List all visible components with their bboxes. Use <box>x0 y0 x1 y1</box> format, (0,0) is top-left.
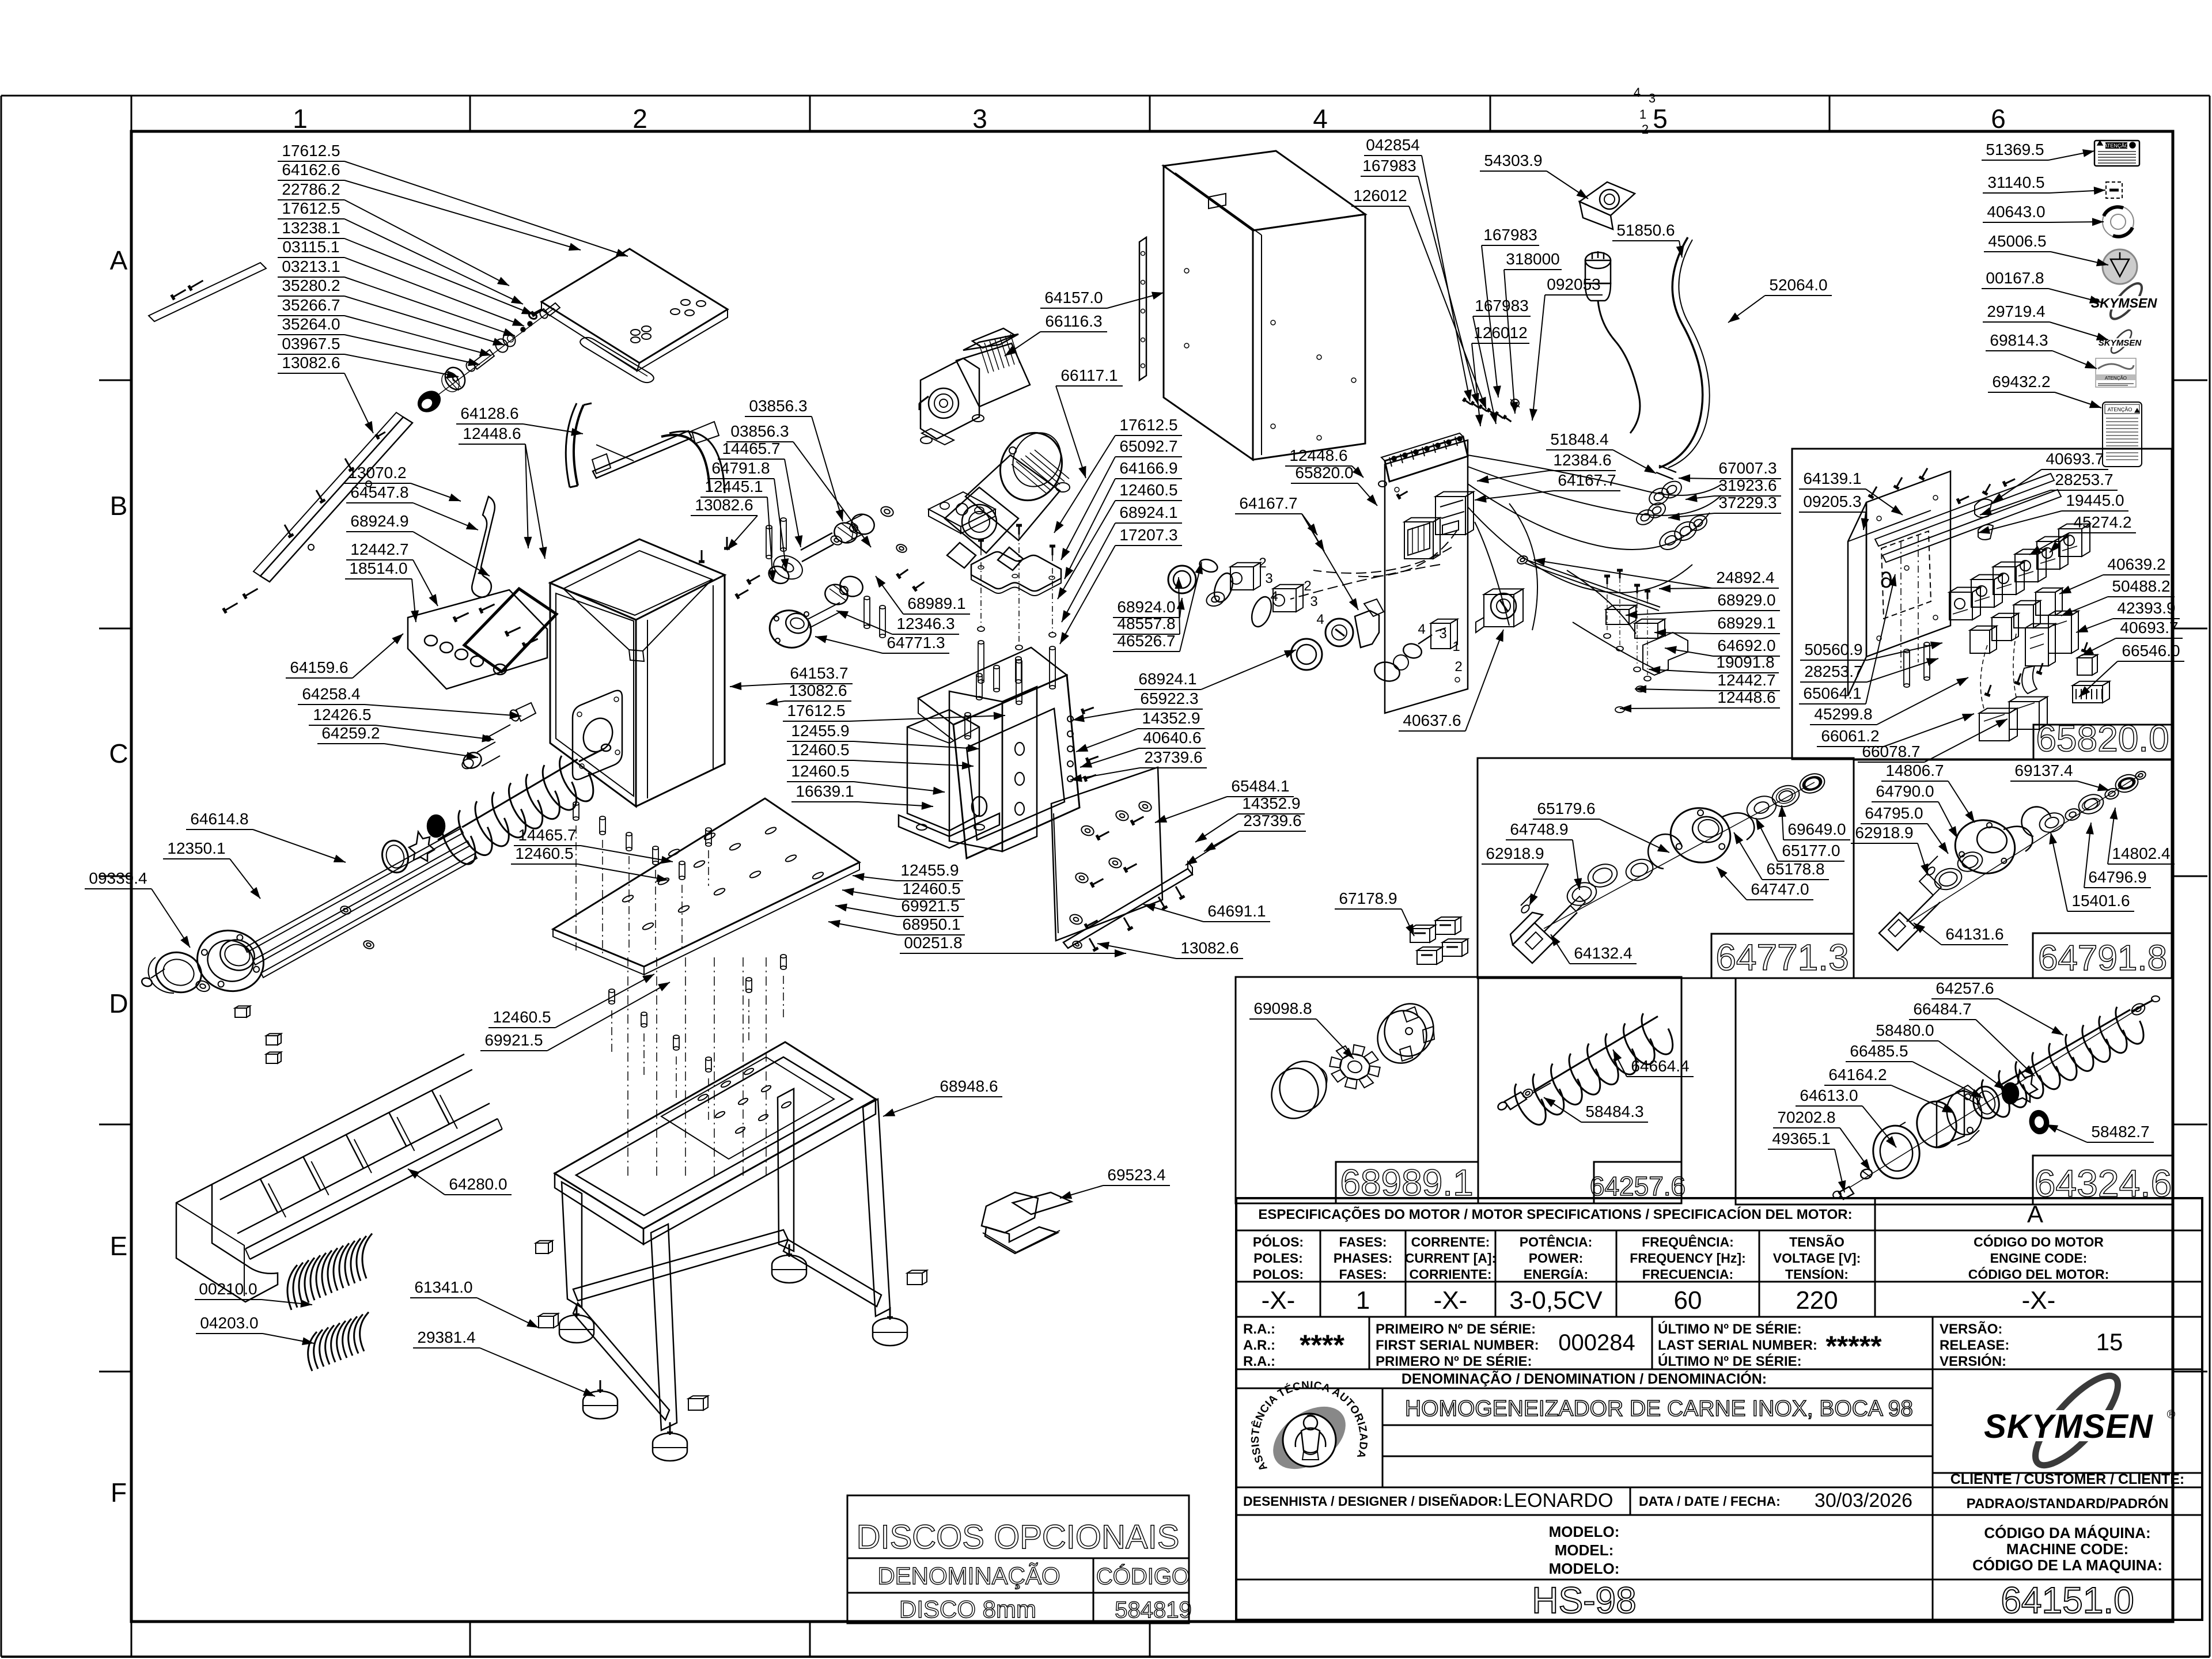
svg-text:167983: 167983 <box>1475 297 1528 315</box>
svg-text:1: 1 <box>1639 107 1646 122</box>
svg-text:17612.5: 17612.5 <box>282 199 340 217</box>
svg-text:65064.1: 65064.1 <box>1803 684 1861 702</box>
svg-text:60: 60 <box>1674 1286 1702 1315</box>
svg-text:40643.0: 40643.0 <box>1987 203 2045 221</box>
svg-text:12442.7: 12442.7 <box>1717 671 1775 689</box>
svg-text:4: 4 <box>1418 622 1425 637</box>
svg-text:03856.3: 03856.3 <box>749 397 807 415</box>
svg-text:092053: 092053 <box>1547 275 1600 293</box>
svg-text:FREQUÊNCIA:: FREQUÊNCIA: <box>1642 1234 1734 1249</box>
svg-text:67007.3: 67007.3 <box>1718 459 1777 477</box>
svg-text:12448.6: 12448.6 <box>1289 446 1347 464</box>
svg-text:69432.2: 69432.2 <box>1992 373 2050 391</box>
svg-text:64547.8: 64547.8 <box>350 483 408 501</box>
svg-text:14352.9: 14352.9 <box>1242 794 1300 812</box>
svg-text:69523.4: 69523.4 <box>1107 1166 1165 1184</box>
svg-text:CÓDIGO DO MOTOR: CÓDIGO DO MOTOR <box>1974 1234 2104 1249</box>
svg-text:CORRIENTE:: CORRIENTE: <box>1409 1267 1491 1282</box>
svg-text:58484.3: 58484.3 <box>1585 1103 1643 1120</box>
svg-text:64258.4: 64258.4 <box>302 685 360 703</box>
svg-text:65177.0: 65177.0 <box>1782 842 1840 859</box>
svg-text:66117.1: 66117.1 <box>1060 366 1118 384</box>
svg-text:FRECUENCIA:: FRECUENCIA: <box>1642 1267 1733 1282</box>
svg-text:PRIMERO Nº DE SÉRIE:: PRIMERO Nº DE SÉRIE: <box>1376 1353 1532 1369</box>
svg-text:49365.1: 49365.1 <box>1772 1130 1830 1147</box>
svg-text:70202.8: 70202.8 <box>1777 1108 1835 1126</box>
svg-text:LAST SERIAL NUMBER:: LAST SERIAL NUMBER: <box>1658 1338 1817 1353</box>
svg-text:POLES:: POLES: <box>1253 1251 1303 1266</box>
svg-text:VERSÃO:: VERSÃO: <box>1940 1321 2002 1337</box>
svg-text:64280.0: 64280.0 <box>449 1175 507 1193</box>
svg-text:126012: 126012 <box>1474 324 1527 342</box>
svg-text:28253.7: 28253.7 <box>2055 471 2113 488</box>
svg-text:69814.3: 69814.3 <box>1990 331 2048 349</box>
svg-text:167983: 167983 <box>1483 226 1537 244</box>
svg-text:ÚLTIMO Nº DE SÉRIE:: ÚLTIMO Nº DE SÉRIE: <box>1658 1353 1802 1369</box>
svg-text:POLOS:: POLOS: <box>1253 1267 1304 1282</box>
svg-text:LEONARDO: LEONARDO <box>1503 1490 1613 1512</box>
svg-text:64791.8: 64791.8 <box>2038 938 2167 978</box>
svg-text:64167.7: 64167.7 <box>1558 471 1616 489</box>
svg-text:31923.6: 31923.6 <box>1718 476 1777 494</box>
svg-text:17612.5: 17612.5 <box>787 702 845 719</box>
svg-text:®: ® <box>2167 1408 2176 1421</box>
svg-text:HOMOGENEIZADOR DE CARNE INOX,: HOMOGENEIZADOR DE CARNE INOX, BOCA 98 <box>1405 1396 1913 1421</box>
svg-text:17612.5: 17612.5 <box>1119 416 1177 434</box>
svg-text:12460.5: 12460.5 <box>515 844 573 862</box>
svg-text:03967.5: 03967.5 <box>282 335 340 353</box>
svg-text:12460.5: 12460.5 <box>902 880 960 897</box>
svg-text:14802.4: 14802.4 <box>2112 844 2170 862</box>
svg-text:68929.1: 68929.1 <box>1717 614 1775 632</box>
svg-text:69098.8: 69098.8 <box>1253 999 1312 1017</box>
svg-text:FIRST SERIAL NUMBER:: FIRST SERIAL NUMBER: <box>1376 1338 1539 1353</box>
svg-text:ÚLTIMO Nº DE SÉRIE:: ÚLTIMO Nº DE SÉRIE: <box>1658 1321 1802 1337</box>
svg-text:DISCOS OPCIONAIS: DISCOS OPCIONAIS <box>857 1518 1180 1556</box>
svg-text:F: F <box>111 1478 127 1508</box>
svg-text:CÓDIGO: CÓDIGO <box>1096 1563 1190 1589</box>
svg-text:ENERGÍA:: ENERGÍA: <box>1524 1266 1588 1282</box>
svg-text:58480.0: 58480.0 <box>1876 1021 1934 1039</box>
svg-text:68950.1: 68950.1 <box>902 915 960 933</box>
svg-text:4: 4 <box>1313 104 1328 134</box>
svg-text:C: C <box>109 738 128 768</box>
svg-text:15: 15 <box>2096 1328 2123 1355</box>
svg-text:12384.6: 12384.6 <box>1553 451 1611 469</box>
svg-text:31140.5: 31140.5 <box>1987 173 2044 191</box>
svg-text:12455.9: 12455.9 <box>900 861 959 879</box>
svg-text:64259.2: 64259.2 <box>321 724 380 742</box>
svg-text:64139.1: 64139.1 <box>1803 469 1861 487</box>
svg-text:00251.8: 00251.8 <box>904 934 962 952</box>
svg-text:-X-: -X- <box>2022 1286 2056 1315</box>
svg-text:12426.5: 12426.5 <box>313 706 371 724</box>
svg-text:64771.3: 64771.3 <box>1715 937 1849 978</box>
svg-text:69921.5: 69921.5 <box>901 897 959 915</box>
svg-text:64166.9: 64166.9 <box>1119 459 1177 477</box>
svg-text:22786.2: 22786.2 <box>282 180 340 198</box>
svg-text:64159.6: 64159.6 <box>290 658 348 676</box>
svg-text:50560.9: 50560.9 <box>1804 641 1862 658</box>
svg-text:51848.4: 51848.4 <box>1550 430 1608 448</box>
svg-text:17612.5: 17612.5 <box>282 142 340 160</box>
svg-text:35280.2: 35280.2 <box>282 276 340 294</box>
svg-text:23739.6: 23739.6 <box>1144 748 1202 766</box>
svg-text:35266.7: 35266.7 <box>282 296 340 314</box>
svg-text:12460.5: 12460.5 <box>1119 481 1177 499</box>
svg-text:ESPECIFICAÇÕES DO MOTOR / MOTO: ESPECIFICAÇÕES DO MOTOR / MOTOR SPECIFIC… <box>1258 1206 1852 1222</box>
svg-text:64162.6: 64162.6 <box>282 161 340 179</box>
svg-text:12455.9: 12455.9 <box>791 722 849 740</box>
svg-text:12460.5: 12460.5 <box>493 1008 551 1026</box>
svg-text:13082.6: 13082.6 <box>282 354 340 372</box>
svg-text:1: 1 <box>1356 1286 1370 1315</box>
svg-text:-X-: -X- <box>1434 1286 1468 1315</box>
svg-text:CLIENTE / CUSTOMER / CLIENTE:: CLIENTE / CUSTOMER / CLIENTE: <box>1950 1471 2185 1487</box>
svg-text:1: 1 <box>1452 639 1460 654</box>
svg-text:CÓDIGO DE LA MAQUINA:: CÓDIGO DE LA MAQUINA: <box>1972 1556 2162 1574</box>
svg-text:DENOMINAÇÃO / DENOMINATION / D: DENOMINAÇÃO / DENOMINATION / DENOMINACIÓ… <box>1402 1370 1767 1387</box>
svg-text:54303.9: 54303.9 <box>1484 151 1542 169</box>
svg-text:40639.2: 40639.2 <box>2107 555 2165 573</box>
svg-text:64614.8: 64614.8 <box>190 810 248 828</box>
svg-text:30/03/2026: 30/03/2026 <box>1815 1490 1912 1512</box>
svg-text:POTÊNCIA:: POTÊNCIA: <box>1520 1234 1593 1249</box>
svg-text:64790.0: 64790.0 <box>1876 782 1934 800</box>
svg-text:16639.1: 16639.1 <box>796 782 854 800</box>
svg-text:64747.0: 64747.0 <box>1751 880 1809 898</box>
svg-text:64157.0: 64157.0 <box>1044 289 1103 306</box>
svg-text:MODELO:: MODELO: <box>1549 1560 1620 1577</box>
svg-text:64795.0: 64795.0 <box>1865 804 1923 822</box>
svg-text:64691.1: 64691.1 <box>1207 902 1266 920</box>
svg-text:CURRENT [A]:: CURRENT [A]: <box>1405 1251 1496 1266</box>
svg-text:64128.6: 64128.6 <box>460 404 518 422</box>
svg-text:MODELO:: MODELO: <box>1549 1523 1620 1540</box>
svg-text:A.R.:: A.R.: <box>1243 1338 1275 1353</box>
svg-text:64151.0: 64151.0 <box>2001 1580 2134 1621</box>
svg-text:*****: ***** <box>1825 1330 1882 1362</box>
svg-text:4: 4 <box>1316 612 1324 627</box>
svg-text:65820.0: 65820.0 <box>1295 464 1353 482</box>
svg-text:62918.9: 62918.9 <box>1855 824 1913 842</box>
svg-text:69137.4: 69137.4 <box>2014 762 2073 779</box>
svg-text:14465.7: 14465.7 <box>518 826 576 844</box>
svg-text:ENGINE CODE:: ENGINE CODE: <box>1990 1251 2088 1266</box>
svg-text:65179.6: 65179.6 <box>1537 800 1595 817</box>
svg-text:2: 2 <box>1259 555 1266 571</box>
svg-text:48557.8: 48557.8 <box>1117 615 1175 632</box>
svg-text:66116.3: 66116.3 <box>1045 312 1102 330</box>
svg-text:13070.2: 13070.2 <box>348 464 406 482</box>
svg-text:1: 1 <box>293 104 308 134</box>
svg-text:45274.2: 45274.2 <box>2073 513 2131 531</box>
svg-text:15401.6: 15401.6 <box>2071 892 2130 910</box>
svg-text:4: 4 <box>1270 589 1278 604</box>
svg-text:00210.0: 00210.0 <box>199 1280 257 1298</box>
svg-text:17207.3: 17207.3 <box>1119 526 1177 544</box>
svg-text:12460.5: 12460.5 <box>791 762 849 780</box>
svg-text:3: 3 <box>1649 91 1656 105</box>
svg-text:E: E <box>110 1231 128 1261</box>
svg-text:DENOMINAÇÃO: DENOMINAÇÃO <box>877 1562 1060 1589</box>
svg-text:A: A <box>110 245 128 275</box>
svg-text:45006.5: 45006.5 <box>1988 232 2046 250</box>
svg-text:64692.0: 64692.0 <box>1717 637 1775 654</box>
svg-text:VOLTAGE [V]:: VOLTAGE [V]: <box>1773 1251 1861 1266</box>
svg-text:45299.8: 45299.8 <box>1814 705 1872 723</box>
svg-text:ATENÇÃO: ATENÇÃO <box>2105 376 2127 381</box>
svg-text:CÓDIGO DEL MOTOR:: CÓDIGO DEL MOTOR: <box>1968 1266 2109 1282</box>
svg-text:64257.6: 64257.6 <box>1935 979 1994 997</box>
svg-text:CÓDIGO DA MÁQUINA:: CÓDIGO DA MÁQUINA: <box>1984 1524 2150 1541</box>
svg-text:ATENÇÃO: ATENÇÃO <box>2108 407 2133 412</box>
svg-text:40693.7: 40693.7 <box>2046 450 2104 468</box>
svg-text:B: B <box>110 491 128 521</box>
svg-text:40693.7: 40693.7 <box>2120 619 2178 637</box>
svg-text:13238.1: 13238.1 <box>282 219 340 237</box>
svg-text:167983: 167983 <box>1362 157 1416 175</box>
svg-text:69649.0: 69649.0 <box>1787 820 1846 838</box>
svg-text:64257.6: 64257.6 <box>1590 1171 1685 1201</box>
svg-text:04203.0: 04203.0 <box>200 1314 258 1332</box>
svg-text:09205.3: 09205.3 <box>1803 493 1861 510</box>
svg-text:PHASES:: PHASES: <box>1334 1251 1392 1266</box>
svg-text:3: 3 <box>1439 626 1446 642</box>
svg-text:13082.6: 13082.6 <box>789 681 847 699</box>
svg-text:68924.1: 68924.1 <box>1138 670 1196 688</box>
svg-text:PADRAO/STANDARD/PADRÓN: PADRAO/STANDARD/PADRÓN <box>1967 1495 2169 1512</box>
svg-text:D: D <box>109 988 128 1018</box>
svg-text:51850.6: 51850.6 <box>1616 221 1675 239</box>
svg-text:DISCO 8mm: DISCO 8mm <box>899 1596 1036 1623</box>
svg-text:POWER:: POWER: <box>1529 1251 1584 1266</box>
svg-text:-X-: -X- <box>1262 1286 1296 1315</box>
svg-text:61341.0: 61341.0 <box>414 1278 472 1296</box>
svg-text:24892.4: 24892.4 <box>1716 569 1774 586</box>
svg-text:64164.2: 64164.2 <box>1828 1066 1887 1084</box>
svg-text:13082.6: 13082.6 <box>1180 939 1238 957</box>
svg-text:58482.7: 58482.7 <box>2091 1123 2149 1141</box>
svg-text:R.A.:: R.A.: <box>1243 1321 1275 1337</box>
svg-text:65092.7: 65092.7 <box>1119 437 1177 455</box>
svg-text:00167.8: 00167.8 <box>1986 269 2044 287</box>
svg-text:12350.1: 12350.1 <box>167 839 225 857</box>
svg-text:65178.8: 65178.8 <box>1766 860 1824 878</box>
svg-text:14806.7: 14806.7 <box>1885 762 1944 779</box>
svg-text:3-0,5CV: 3-0,5CV <box>1509 1286 1603 1315</box>
svg-text:6: 6 <box>1880 567 1893 593</box>
svg-text:****: **** <box>1300 1329 1344 1361</box>
svg-text:12445.1: 12445.1 <box>704 478 763 495</box>
svg-text:50488.2: 50488.2 <box>2112 577 2170 595</box>
svg-text:03856.3: 03856.3 <box>730 422 789 440</box>
svg-text:14352.9: 14352.9 <box>1142 709 1200 727</box>
svg-text:12346.3: 12346.3 <box>896 615 955 632</box>
svg-text:66485.5: 66485.5 <box>1850 1042 1908 1060</box>
svg-text:2: 2 <box>1304 578 1311 594</box>
svg-text:12448.6: 12448.6 <box>1717 688 1775 706</box>
svg-text:FREQUENCY [Hz]:: FREQUENCY [Hz]: <box>1630 1251 1745 1266</box>
svg-text:6: 6 <box>1991 104 2006 134</box>
svg-text:220: 220 <box>1796 1286 1838 1315</box>
svg-text:SKYMSEN: SKYMSEN <box>2091 296 2158 310</box>
svg-text:64748.9: 64748.9 <box>1510 820 1568 838</box>
svg-text:042854: 042854 <box>1366 136 1419 154</box>
svg-text:DESENHISTA / DESIGNER / DISEÑA: DESENHISTA / DESIGNER / DISEÑADOR: <box>1243 1493 1502 1509</box>
svg-text:64796.9: 64796.9 <box>2088 868 2146 886</box>
svg-text:3: 3 <box>1265 571 1272 586</box>
svg-text:69921.5: 69921.5 <box>484 1031 543 1049</box>
svg-text:TENSÃO: TENSÃO <box>1789 1234 1844 1249</box>
svg-text:68948.6: 68948.6 <box>940 1077 998 1095</box>
svg-text:67178.9: 67178.9 <box>1339 889 1397 907</box>
svg-text:PRIMEIRO Nº DE SÉRIE:: PRIMEIRO Nº DE SÉRIE: <box>1376 1321 1536 1337</box>
svg-text:66078.7: 66078.7 <box>1862 743 1920 760</box>
svg-text:68924.1: 68924.1 <box>1119 503 1177 521</box>
svg-text:HS-98: HS-98 <box>1532 1580 1636 1621</box>
svg-text:19091.8: 19091.8 <box>1716 653 1774 671</box>
svg-text:66484.7: 66484.7 <box>1913 1000 1971 1018</box>
svg-text:FASES:: FASES: <box>1339 1234 1387 1249</box>
svg-text:64664.4: 64664.4 <box>1631 1057 1689 1075</box>
svg-text:CORRENTE:: CORRENTE: <box>1411 1234 1490 1249</box>
svg-text:64791.8: 64791.8 <box>711 459 770 477</box>
svg-text:37229.3: 37229.3 <box>1718 494 1777 512</box>
svg-text:2: 2 <box>1455 659 1462 675</box>
svg-text:68989.1: 68989.1 <box>907 594 965 612</box>
svg-text:51369.5: 51369.5 <box>1986 141 2044 158</box>
svg-text:23739.6: 23739.6 <box>1243 812 1301 829</box>
svg-text:DATA / DATE / FECHA:: DATA / DATE / FECHA: <box>1639 1494 1781 1509</box>
svg-text:584819: 584819 <box>1115 1597 1191 1623</box>
svg-text:MODEL:: MODEL: <box>1555 1541 1614 1559</box>
svg-text:12460.5: 12460.5 <box>791 741 849 759</box>
svg-text:2: 2 <box>1642 122 1649 137</box>
svg-text:SKYMSEN: SKYMSEN <box>1984 1408 2153 1445</box>
svg-text:65484.1: 65484.1 <box>1231 777 1289 795</box>
svg-text:126012: 126012 <box>1353 187 1407 204</box>
svg-text:TENSÍON:: TENSÍON: <box>1785 1266 1849 1282</box>
svg-text:64167.7: 64167.7 <box>1239 494 1297 512</box>
svg-text:000284: 000284 <box>1558 1330 1635 1355</box>
svg-text:03115.1: 03115.1 <box>282 238 339 256</box>
svg-text:29719.4: 29719.4 <box>1987 302 2045 320</box>
svg-text:FASES:: FASES: <box>1339 1267 1387 1282</box>
svg-text:13082.6: 13082.6 <box>695 496 753 514</box>
svg-text:35264.0: 35264.0 <box>282 315 340 333</box>
svg-text:3: 3 <box>1310 594 1317 609</box>
svg-text:12448.6: 12448.6 <box>463 425 521 442</box>
svg-text:46526.7: 46526.7 <box>1117 632 1175 650</box>
svg-text:40640.6: 40640.6 <box>1143 729 1201 747</box>
svg-text:65820.0: 65820.0 <box>2036 718 2169 759</box>
svg-text:A: A <box>2027 1200 2043 1228</box>
svg-text:09339.4: 09339.4 <box>89 869 147 887</box>
svg-text:2: 2 <box>632 104 647 134</box>
svg-text:29381.4: 29381.4 <box>417 1328 475 1346</box>
svg-text:VERSIÓN:: VERSIÓN: <box>1940 1353 2006 1369</box>
svg-text:19445.0: 19445.0 <box>2066 491 2124 509</box>
svg-text:40637.6: 40637.6 <box>1403 711 1461 729</box>
svg-text:R.A.:: R.A.: <box>1243 1354 1275 1369</box>
svg-text:318000: 318000 <box>1506 250 1559 268</box>
svg-text:18514.0: 18514.0 <box>349 559 407 577</box>
svg-text:52064.0: 52064.0 <box>1769 276 1827 294</box>
svg-text:64131.6: 64131.6 <box>1945 925 2003 943</box>
svg-text:3: 3 <box>972 104 987 134</box>
svg-text:68924.0: 68924.0 <box>1117 598 1175 616</box>
svg-text:65922.3: 65922.3 <box>1140 690 1198 707</box>
svg-text:28253.7: 28253.7 <box>1804 662 1862 680</box>
svg-text:62918.9: 62918.9 <box>1486 844 1544 862</box>
svg-text:PÓLOS:: PÓLOS: <box>1253 1234 1304 1249</box>
svg-text:64132.4: 64132.4 <box>1574 944 1632 962</box>
svg-text:64771.3: 64771.3 <box>887 634 945 652</box>
svg-text:5: 5 <box>1653 104 1668 134</box>
svg-text:03213.1: 03213.1 <box>282 257 340 275</box>
svg-text:64153.7: 64153.7 <box>790 664 848 682</box>
svg-text:42393.9: 42393.9 <box>2117 599 2175 617</box>
svg-text:68929.0: 68929.0 <box>1717 591 1775 609</box>
svg-text:68924.9: 68924.9 <box>350 512 408 530</box>
svg-text:MACHINE CODE:: MACHINE CODE: <box>2006 1540 2128 1558</box>
svg-text:64613.0: 64613.0 <box>1800 1086 1858 1104</box>
svg-text:14465.7: 14465.7 <box>722 440 780 457</box>
svg-text:ATENÇÃO: ATENÇÃO <box>2104 143 2129 149</box>
svg-text:RELEASE:: RELEASE: <box>1940 1338 2009 1353</box>
svg-text:4: 4 <box>1634 85 1641 100</box>
svg-text:12442.7: 12442.7 <box>350 540 408 558</box>
